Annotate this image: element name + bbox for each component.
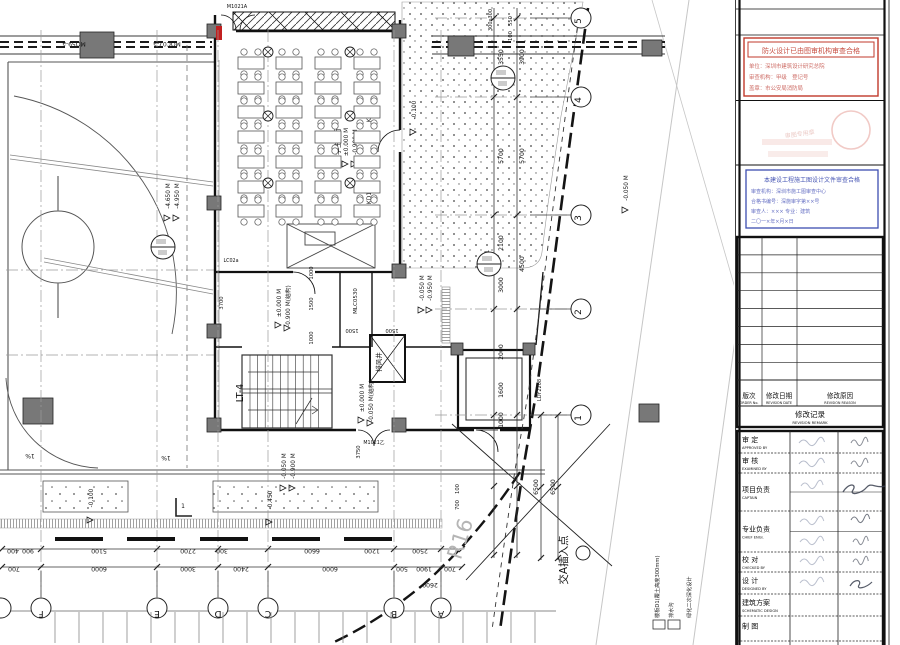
approval-row-label: 校 对 xyxy=(742,555,758,564)
elevation-label: -0.100 xyxy=(89,488,95,507)
dim-text: 6500 xyxy=(550,479,557,495)
dim-text: 500 xyxy=(396,565,408,572)
elevation-triangle-icon xyxy=(358,417,364,423)
chair xyxy=(318,98,324,104)
dining-table xyxy=(276,106,302,118)
chair xyxy=(357,173,363,179)
chair xyxy=(279,98,285,104)
dim-text: 2400 xyxy=(233,565,249,572)
grid-number: 5 xyxy=(574,18,584,24)
rev-title: 修改记录 xyxy=(795,409,825,419)
chair xyxy=(255,123,261,129)
elevation-label: -0.450 xyxy=(268,490,274,509)
elevation-triangle-icon xyxy=(164,215,170,221)
grid-number: 3 xyxy=(574,215,584,221)
dim-text: 5700 xyxy=(519,148,526,164)
dim-text: 400 xyxy=(7,547,19,554)
red-stamp-line3: 审查机构：甲级 登记号 xyxy=(749,73,809,81)
grid-bubble-number xyxy=(571,405,591,425)
detail-marker-smudge xyxy=(498,81,507,86)
dining-table xyxy=(354,156,380,168)
chair xyxy=(332,123,338,129)
detail-marker-smudge xyxy=(156,239,166,244)
dim-text: 3550 xyxy=(498,49,505,65)
chair xyxy=(293,123,299,129)
grid-bubble-number xyxy=(571,205,591,225)
plan-label: LT-4 xyxy=(235,384,246,402)
chair xyxy=(332,98,338,104)
dining-table xyxy=(276,156,302,168)
dining-table xyxy=(354,181,380,193)
chair xyxy=(293,173,299,179)
chair xyxy=(318,197,324,203)
elevation-label: -0.900 M(结构) xyxy=(284,285,292,327)
chair xyxy=(371,148,377,154)
dim-text: 2000 xyxy=(498,344,505,360)
rev-col-reason: 修改原因 xyxy=(827,391,854,400)
dining-table xyxy=(238,156,264,168)
grid-bubble-number xyxy=(571,8,591,28)
grid-letter: A xyxy=(437,608,444,618)
chair xyxy=(279,219,285,225)
dining-table xyxy=(276,205,302,217)
plan-label: LC02a xyxy=(223,258,238,264)
red-stamp-line1: 防火设计已由图审机构审查合格 xyxy=(762,46,860,55)
blue-stamp-line2: 审查机构：深圳市施工图审查中心 xyxy=(751,188,826,195)
elevation-triangle-icon xyxy=(342,161,348,167)
elevation-label: -4.650 M xyxy=(166,183,172,209)
plan-label: MQ59-a xyxy=(62,40,86,47)
dining-table xyxy=(276,131,302,143)
chair xyxy=(357,197,363,203)
approval-row-label: 审 定 xyxy=(742,435,758,444)
dim-text: 6500 xyxy=(533,479,540,495)
fire-hydrant-marker xyxy=(216,26,222,40)
rev-col-no-en: ORDER No. xyxy=(740,401,759,405)
insertion-point-leader xyxy=(452,424,612,580)
approval-row-label: 审 核 xyxy=(742,456,758,465)
chair xyxy=(357,98,363,104)
stage-area xyxy=(287,224,375,268)
dim-text-small: 550 xyxy=(508,16,514,26)
dining-table xyxy=(354,57,380,69)
dim-text: 2100 xyxy=(498,235,505,251)
dining-table xyxy=(315,205,341,217)
chair xyxy=(332,74,338,80)
chair xyxy=(255,148,261,154)
legend-swatch xyxy=(653,620,665,629)
chair xyxy=(293,74,299,80)
dim-text-small: 3700 xyxy=(219,296,225,309)
elevation-triangle-icon xyxy=(173,215,179,221)
chair xyxy=(255,74,261,80)
dim-text: 2600 xyxy=(422,581,438,588)
chair xyxy=(279,148,285,154)
chair xyxy=(318,148,324,154)
chair xyxy=(255,197,261,203)
chair xyxy=(371,98,377,104)
dim-text-small: 1500 xyxy=(385,327,398,333)
elevation-triangle-icon xyxy=(275,322,281,328)
wall-bar xyxy=(55,537,103,541)
grid-letter: F xyxy=(38,608,43,618)
dining-table xyxy=(354,131,380,143)
dining-table xyxy=(315,82,341,94)
chair xyxy=(241,49,247,55)
approval-row-label-en: APPROVED BY xyxy=(742,446,768,450)
chair xyxy=(241,74,247,80)
dining-table xyxy=(238,131,264,143)
detail-marker-smudge xyxy=(158,250,167,255)
dining-table xyxy=(315,57,341,69)
detail-marker-smudge xyxy=(484,267,493,272)
dim-text-small: 1500 xyxy=(345,327,358,333)
chair xyxy=(241,123,247,129)
chair xyxy=(255,49,261,55)
dim-text-small: 1000 xyxy=(309,331,315,344)
dining-table xyxy=(238,205,264,217)
elevation-label: -0.050 M xyxy=(420,275,426,301)
chair xyxy=(293,148,299,154)
elevation-label: ±0.000 M xyxy=(277,289,283,317)
legend-label: 楼板D1(覆土高度300mm) xyxy=(653,556,661,618)
chair xyxy=(332,49,338,55)
dining-table xyxy=(276,57,302,69)
dim-text: 700 xyxy=(8,565,20,572)
chair xyxy=(241,148,247,154)
chair xyxy=(241,173,247,179)
rev-col-date: 修改日期 xyxy=(766,391,793,400)
grid-letter: E xyxy=(154,608,160,618)
elevation-triangle-icon xyxy=(426,307,432,313)
chair xyxy=(255,219,261,225)
plan-label: 1% xyxy=(25,452,35,459)
chair xyxy=(255,173,261,179)
dining-table xyxy=(276,82,302,94)
dim-text: 300 xyxy=(216,547,228,554)
rev-col-reason-en: REVISION REASON xyxy=(824,401,856,405)
elevation-label: -0.050 M xyxy=(624,175,630,201)
elevation-label: -4.950 M xyxy=(175,183,181,209)
dining-table xyxy=(315,181,341,193)
red-stamp-line2: 单位：深圳市建筑设计研究总院 xyxy=(749,62,825,70)
chair xyxy=(279,74,285,80)
chair xyxy=(279,49,285,55)
elevation-label: -0.050 M xyxy=(282,453,288,479)
chair xyxy=(255,98,261,104)
chair xyxy=(357,123,363,129)
drawing-sheet: 防火设计已由图审机构审查合格 单位：深圳市建筑设计研究总院 审查机构：甲级 登记… xyxy=(0,0,900,645)
blue-stamp-line3: 合格书编号：深施审字第××号 xyxy=(751,198,819,205)
dining-table xyxy=(238,57,264,69)
dim-text: 3000 xyxy=(180,565,196,572)
chair xyxy=(318,123,324,129)
legend-label: 绿化二次深化设计 xyxy=(685,576,693,618)
grid-number: 2 xyxy=(574,309,584,315)
chair xyxy=(241,197,247,203)
chair xyxy=(279,173,285,179)
chair xyxy=(371,49,377,55)
dim-text: 4500 xyxy=(519,256,526,272)
site-bottom-works xyxy=(0,481,556,611)
chair xyxy=(371,173,377,179)
dining-table xyxy=(315,156,341,168)
dim-text-small: 1000 xyxy=(309,266,315,279)
chair xyxy=(357,219,363,225)
approval-row-label-en: CAPTAIN xyxy=(742,496,758,500)
elevation-triangle-icon xyxy=(622,207,628,213)
approval-row-label: 设 计 xyxy=(742,576,758,585)
plan-label: M1021A xyxy=(227,4,248,10)
wall-bar xyxy=(200,537,248,541)
detail-marker-smudge xyxy=(482,256,492,261)
elevation-label: ±0.000 M xyxy=(344,128,350,156)
legend-swatch xyxy=(668,620,680,629)
chair xyxy=(332,197,338,203)
plan-label: LDY2208 xyxy=(537,379,543,401)
elevation-label: -0.050 M(结构) xyxy=(367,380,375,422)
plan-label: MQC07-a xyxy=(153,40,181,47)
chair xyxy=(293,98,299,104)
dim-text: 5700 xyxy=(498,148,505,164)
approval-row-label-en: CHIEF ENGI. xyxy=(742,536,764,540)
chair xyxy=(357,148,363,154)
dim-text-small: 1500 xyxy=(309,297,315,310)
dining-table xyxy=(354,82,380,94)
dim-text: 3000 xyxy=(498,277,505,293)
grid-bubble-partial xyxy=(0,598,11,618)
dining-table xyxy=(315,131,341,143)
road-lines xyxy=(596,0,757,645)
dim-text: 2700 xyxy=(180,547,196,554)
dim-text: 1600 xyxy=(498,382,505,398)
chair xyxy=(318,74,324,80)
blue-stamp-line5: 二〇一×年×月×日 xyxy=(751,218,794,225)
dining-table xyxy=(238,181,264,193)
approval-row-label: 项目负责 xyxy=(742,485,770,494)
plan-label: 1 xyxy=(181,503,185,510)
dim-text: 1900 xyxy=(416,565,432,572)
wall-bar xyxy=(344,537,392,541)
chair xyxy=(279,123,285,129)
chair xyxy=(371,74,377,80)
dim-text: 1000 xyxy=(498,412,505,428)
dim-text: 1200 xyxy=(364,547,380,554)
chair xyxy=(332,219,338,225)
plan-label: 1% xyxy=(161,454,171,461)
dim-text-small: 3750 xyxy=(356,445,362,458)
grid-number: 1 xyxy=(574,415,584,421)
blue-stamp-line1: 本建设工程施工图设计文件审查合格 xyxy=(764,176,860,184)
dim-text: 6000 xyxy=(322,565,338,572)
chair xyxy=(241,219,247,225)
chair xyxy=(357,49,363,55)
approval-row-label: 制 图 xyxy=(742,622,758,631)
dining-table xyxy=(354,205,380,217)
approval-row-label-en: EXAMINED BY xyxy=(742,467,767,471)
red-stamp-line4: 盖章：市公安局消防局 xyxy=(749,84,803,92)
chair xyxy=(293,49,299,55)
dining-table xyxy=(238,106,264,118)
dim-text: 700 xyxy=(444,565,456,572)
plan-label: MLC0530 xyxy=(353,288,359,314)
approval-row-label-en: CHECKED BY xyxy=(742,566,766,570)
grid-bubble-number xyxy=(571,87,591,107)
title-block-bg xyxy=(734,0,900,645)
rev-title-en: REVISION REMARK xyxy=(792,420,828,425)
elevation-label: ±0.000 M xyxy=(360,384,366,412)
chair xyxy=(332,148,338,154)
rev-col-date-en: REVISION DATE xyxy=(766,401,792,405)
dim-text: 6000 xyxy=(91,565,107,572)
detail-marker-smudge xyxy=(496,70,506,75)
chair xyxy=(332,173,338,179)
elevation-label: -0.900 M xyxy=(291,453,297,479)
elevation-triangle-icon xyxy=(418,307,424,313)
grid-number: 4 xyxy=(574,97,584,103)
chair xyxy=(371,219,377,225)
plan-label: R16 xyxy=(443,515,479,562)
dim-text-small: 100 xyxy=(508,31,514,41)
wall-bar xyxy=(272,537,320,541)
grid-letter: D xyxy=(214,608,221,618)
plan-label: 交A插入点 xyxy=(557,535,570,584)
chair xyxy=(318,219,324,225)
grid-letter: C xyxy=(265,608,271,618)
dim-text-small: 700 xyxy=(455,500,461,510)
floor-plan-canvas: 防火设计已由图审机构审查合格 单位：深圳市建筑设计研究总院 审查机构：甲级 登记… xyxy=(0,0,900,645)
plan-label: 300x300 xyxy=(488,9,494,31)
wall-bar xyxy=(127,537,175,541)
legend-label: 排水沟 xyxy=(667,602,675,618)
dining-table xyxy=(238,82,264,94)
chair xyxy=(279,197,285,203)
approval-row-label: 建筑方案 xyxy=(742,598,770,607)
plan-label: M1021乙 xyxy=(363,439,384,446)
grid-bubble-number xyxy=(571,299,591,319)
chair xyxy=(293,197,299,203)
dim-text: 6600 xyxy=(304,547,320,554)
dim-text: 2500 xyxy=(412,547,428,554)
dim-text-small: 100 xyxy=(455,484,461,494)
blue-stamp-line4: 审查人：××× 专业：建筑 xyxy=(751,208,810,215)
dim-text: 900 xyxy=(22,547,34,554)
chair xyxy=(371,123,377,129)
plan-label: 排风井 xyxy=(374,352,383,372)
chair xyxy=(318,173,324,179)
chair xyxy=(371,197,377,203)
approval-row-label: 专业负责 xyxy=(742,525,770,534)
dim-text: 5100 xyxy=(91,547,107,554)
dining-table xyxy=(315,106,341,118)
chair xyxy=(241,98,247,104)
grid-letter: B xyxy=(391,608,397,618)
dining-table xyxy=(354,106,380,118)
rev-col-no: 版次 xyxy=(742,391,756,400)
dining-table xyxy=(276,181,302,193)
approval-row-label-en: SCHEMATIC DESIGN xyxy=(742,609,778,613)
chair xyxy=(357,74,363,80)
chair xyxy=(318,49,324,55)
elevation-label: -0.950 M xyxy=(428,275,434,301)
chair xyxy=(293,219,299,225)
dim-text: 3900 xyxy=(519,49,526,65)
approval-row-label-en: DESIGNED BY xyxy=(742,587,767,591)
elevation-label: -0.100 xyxy=(412,100,418,119)
